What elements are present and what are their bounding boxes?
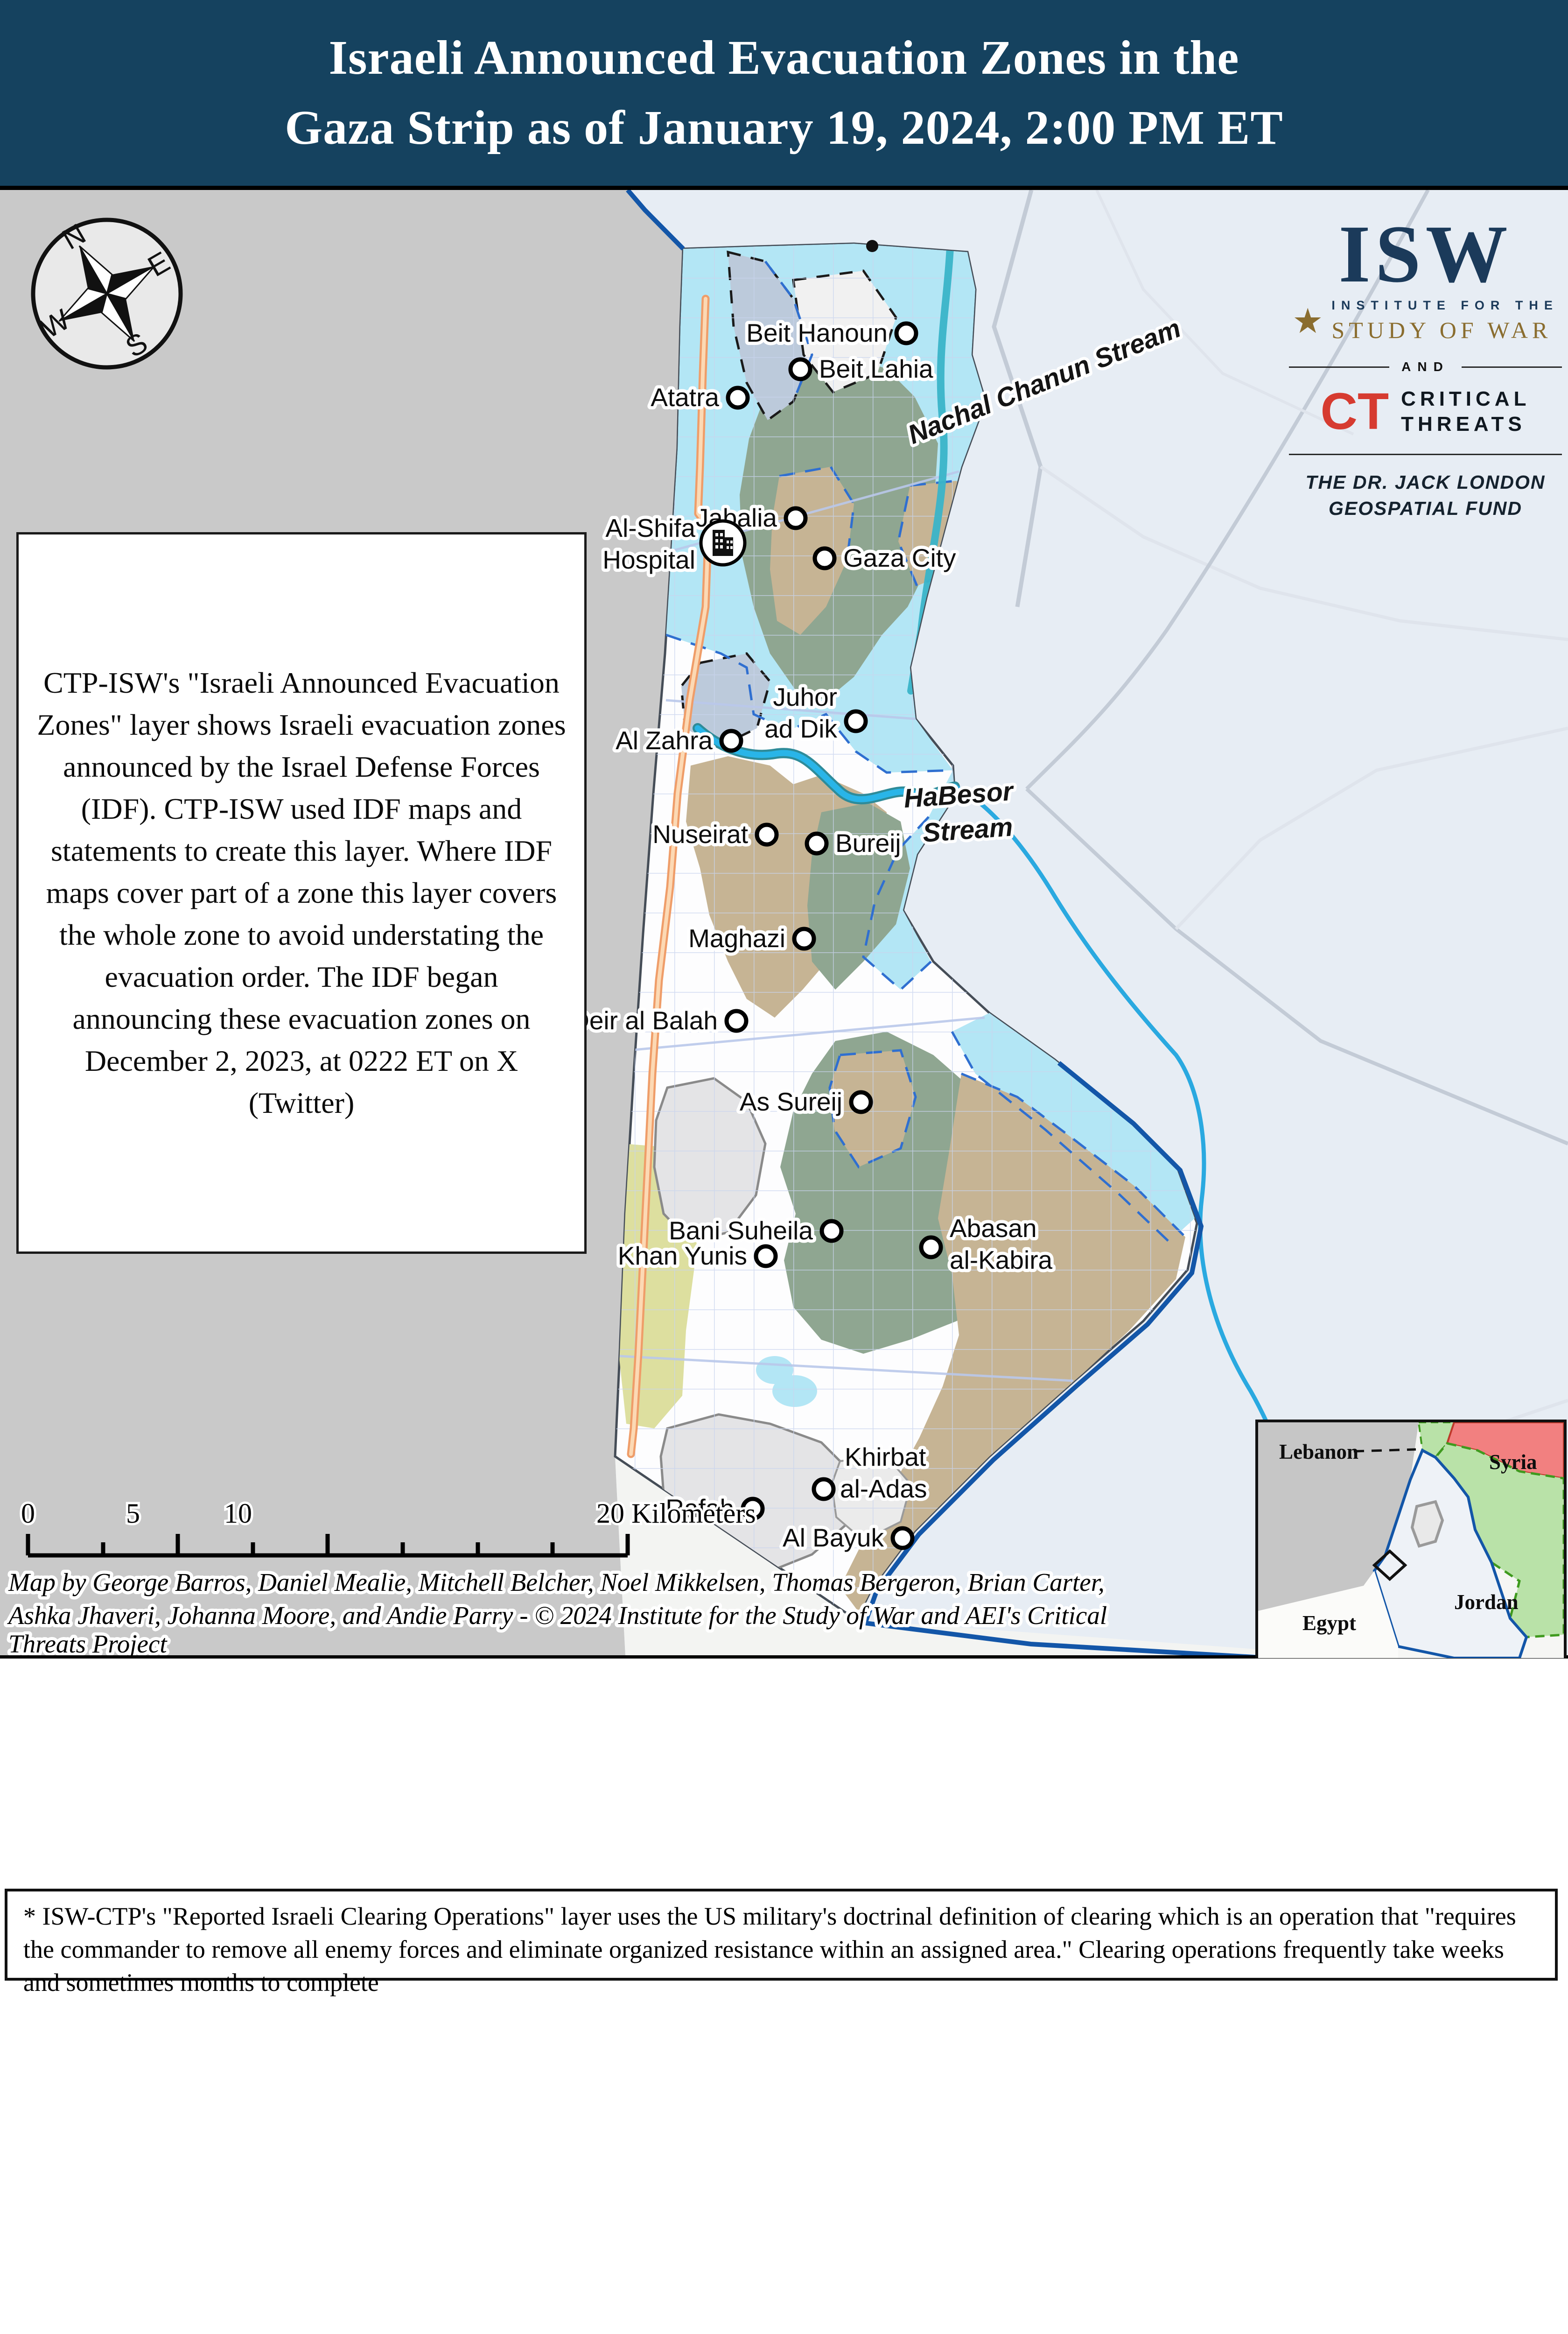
label-abasan-1: Abasan (950, 1214, 1037, 1243)
svg-text:Threats Project: Threats Project (8, 1630, 168, 1655)
label-bureij: Bureij (835, 829, 901, 858)
label-al-shifa-2: Hospital (602, 545, 695, 574)
label-atatra: Atatra (651, 383, 719, 412)
label-beit-lahia: Beit Lahia (819, 354, 933, 383)
inset-label-egypt: Egypt (1302, 1611, 1356, 1635)
ct-mark: CT (1321, 388, 1389, 435)
inset-label-lebanon: Lebanon (1279, 1440, 1358, 1463)
and-label: AND (1401, 359, 1449, 374)
inset-label-syria: Syria (1489, 1450, 1537, 1474)
ct-line-2: THREATS (1401, 412, 1530, 437)
habesor-label-2: Stream (922, 812, 1014, 848)
label-bani-suheila: Bani Suheila (669, 1216, 813, 1245)
map-title-banner: Israeli Announced Evacuation Zones in th… (0, 0, 1568, 190)
svg-text:20 Kilometers: 20 Kilometers (596, 1498, 756, 1529)
and-divider: AND (1289, 359, 1562, 374)
isw-star-icon: ★ (1292, 304, 1323, 338)
isw-subtitle-2: STUDY OF WAR (1331, 316, 1559, 344)
label-al-shifa-1: Al-Shifa (605, 513, 695, 542)
label-al-zahra: Al Zahra (616, 726, 713, 755)
layer-description-text: CTP-ISW's "Israeli Announced Evacuation … (32, 662, 571, 1124)
label-gaza-city: Gaza City (843, 543, 956, 572)
svg-text:Map by George Barros, Daniel M: Map by George Barros, Daniel Mealie, Mit… (8, 1568, 1105, 1596)
region-inset-map: Lebanon Syria Jordan Egypt (1255, 1420, 1567, 1661)
svg-text:Ashka Jhaveri, Johanna Moore,: Ashka Jhaveri, Johanna Moore, and Andie … (7, 1601, 1107, 1630)
label-deir-al-balah: Deir al Balah (571, 1006, 718, 1035)
title-line-2: Gaza Strip as of January 19, 2024, 2:00 … (285, 93, 1283, 163)
label-al-bayuk: Al Bayuk (783, 1523, 884, 1552)
fund-line-2: GEOSPATIAL FUND (1289, 495, 1562, 521)
title-line-1: Israeli Announced Evacuation Zones in th… (329, 23, 1239, 93)
al-shifa-hospital-icon (701, 521, 745, 565)
ct-line-1: CRITICAL (1401, 387, 1530, 412)
isw-subtitle-1: INSTITUTE FOR THE (1331, 298, 1559, 313)
logo-block: ISW ★ INSTITUTE FOR THE STUDY OF WAR AND… (1289, 213, 1562, 521)
label-khirbat-2: al-Adas (840, 1474, 927, 1503)
layer-description-box: CTP-ISW's "Israeli Announced Evacuation … (16, 532, 587, 1254)
footnote-box: * ISW-CTP's "Reported Israeli Clearing O… (5, 1889, 1558, 1981)
label-maghazi: Maghazi (688, 924, 785, 953)
fund-line-1: THE DR. JACK LONDON (1289, 469, 1562, 495)
label-khan-yunis: Khan Yunis (618, 1241, 747, 1270)
erez-crossing-dot (866, 240, 878, 252)
critical-threats-logo: CT CRITICAL THREATS (1289, 387, 1562, 437)
label-khirbat-1: Khirbat (845, 1442, 926, 1471)
label-abasan-2: al-Kabira (950, 1245, 1053, 1274)
label-as-sureij: As Sureij (740, 1087, 842, 1116)
isw-logo: ISW (1289, 213, 1562, 295)
legend: Israel Gaza Strip Jordan and Lebanon Syr… (0, 1659, 1568, 1889)
svg-text:5: 5 (126, 1498, 140, 1529)
main-map: Nachal Chanun Stream HaBesor Stream Beit… (0, 190, 1568, 1659)
compass-rose: N E S W (29, 216, 184, 371)
label-juhor-2: ad Dik (764, 714, 837, 743)
footnote-text: * ISW-CTP's "Reported Israeli Clearing O… (23, 1900, 1539, 1999)
svg-text:0: 0 (21, 1498, 35, 1529)
fund-divider (1289, 454, 1562, 455)
label-beit-hanoun: Beit Hanoun (746, 318, 888, 347)
label-juhor-1: Juhor (773, 682, 837, 711)
svg-text:10: 10 (224, 1498, 252, 1529)
label-nuseirat: Nuseirat (652, 820, 748, 849)
inset-label-jordan: Jordan (1454, 1590, 1519, 1614)
